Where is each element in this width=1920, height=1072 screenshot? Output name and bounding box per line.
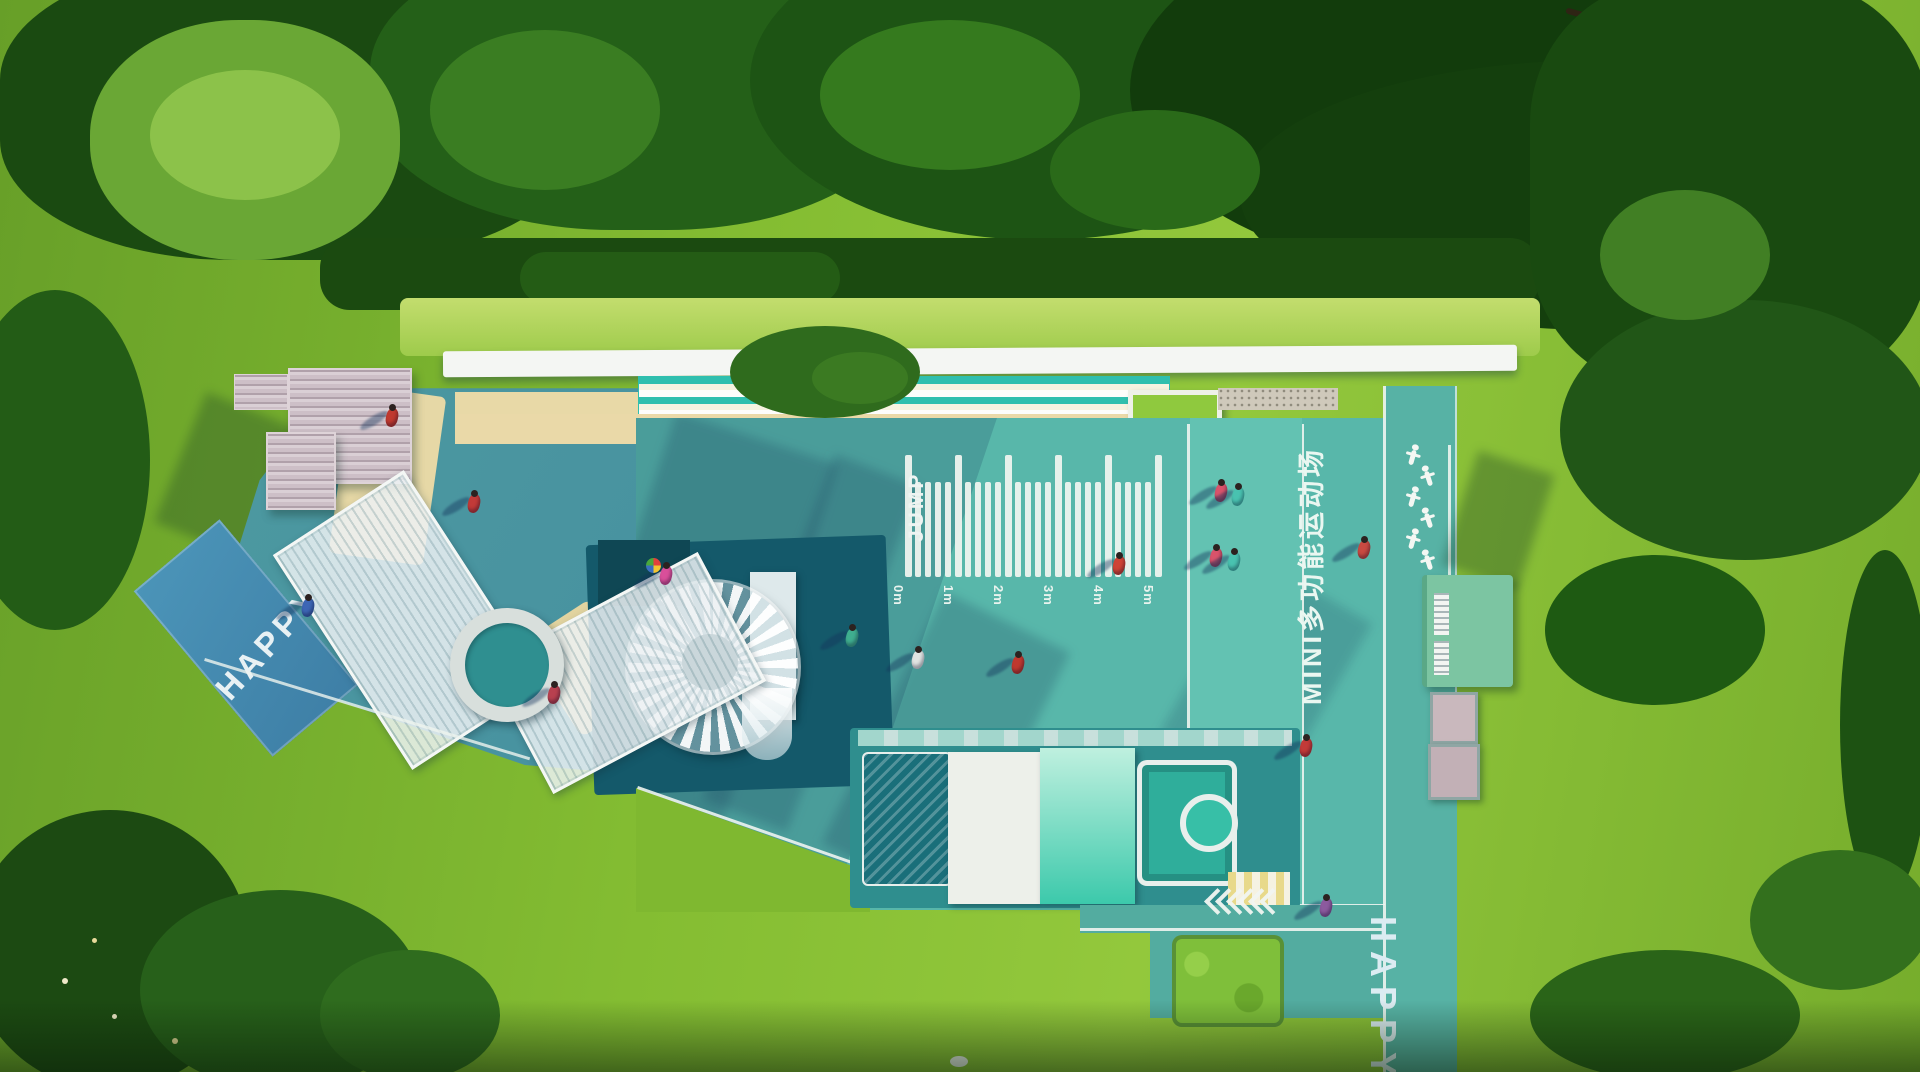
exercise-figure-icon [1424,513,1433,529]
chevron-row [1208,888,1298,922]
overhanging-leaves [812,352,908,404]
ruler-unit-label: 1m [941,585,956,606]
exercise-figure-icon [1424,471,1433,487]
tree-canopy-highlight [820,20,1080,170]
hedge-row-highlight [520,252,840,304]
climbing-ring [450,608,564,722]
kiosk-sign-panel [1434,641,1449,675]
exercise-figure-icon [1424,555,1433,571]
train-zone [850,728,1300,908]
kiosk-booth [1428,744,1480,800]
bush-cluster [1545,555,1765,705]
ruler-minor-tick [1065,482,1071,577]
pergola-roof [443,345,1517,378]
bush-cluster [1840,550,1920,900]
ruler-minor-tick [975,482,981,577]
train-track-stripes [858,730,1292,746]
ruler-minor-tick [995,482,1001,577]
ruler-minor-tick [935,482,941,577]
ruler-minor-tick [1045,482,1051,577]
jump-ruler: 0m1m2m3m4m5m [905,455,1175,620]
ruler-major-tick [1155,455,1162,577]
ruler-minor-tick [965,482,971,577]
ruler-minor-tick [985,482,991,577]
train-platform-slats [862,752,952,886]
court-name-text: MINI多功能运动场 [1290,446,1329,705]
ruler-minor-tick [1135,482,1141,577]
bottom-shadow-vignette [0,1000,1920,1072]
kiosk-sign-panel [1434,593,1449,635]
light-tree-highlight [150,70,340,200]
ruler-minor-tick [1145,482,1151,577]
flower-dot [92,938,97,943]
ruler-unit-label: 5m [1141,585,1156,606]
kiosk-building [1422,575,1513,687]
exercise-figure-icon [1408,534,1417,550]
tree-canopy [1560,300,1920,560]
ruler-major-tick [1055,455,1062,577]
ruler-major-tick [1105,455,1112,577]
ruler-unit-label: 0m [891,585,906,606]
ruler-minor-tick [1025,482,1031,577]
ruler-unit-label: 4m [1091,585,1106,606]
aerial-playground-scene: HAPPY 0m1m2m3m4m5m JUMP MINI多功能运动场 [0,0,1920,1072]
exercise-figure-icon [1408,450,1417,466]
exercise-figure-icon [1408,492,1417,508]
jump-text: JUMP [905,472,929,542]
ruler-major-tick [955,455,962,577]
ruler-minor-tick [1075,482,1081,577]
bush-cluster [1750,850,1920,990]
tree-canopy-highlight [430,30,660,190]
ruler-minor-tick [1095,482,1101,577]
fitness-shadow [1441,451,1554,590]
tree-canopy-highlight [1050,110,1260,230]
train-canopy-white [948,752,1040,904]
train-canopy-mint [1040,748,1135,904]
ruler-minor-tick [1085,482,1091,577]
ruler-minor-tick [1035,482,1041,577]
tree-canopy-highlight [1600,190,1770,320]
ruler-minor-tick [1115,482,1121,577]
wood-deck-small [234,374,288,410]
gravel-path [1218,388,1338,410]
ruler-unit-label: 3m [1041,585,1056,606]
wood-deck [266,432,336,510]
kiosk-booth [1430,692,1478,744]
ruler-major-tick [1005,455,1012,577]
ruler-unit-label: 2m [991,585,1006,606]
fitness-figures [1406,450,1456,590]
slide-exit-tube [742,688,792,760]
path-edge-line [1080,928,1388,931]
tree-canopy [0,290,150,630]
ruler-minor-tick [1125,482,1131,577]
flower-dot [62,978,68,984]
train-engine-boiler [1180,794,1238,852]
ruler-minor-tick [1015,482,1021,577]
ruler-minor-tick [945,482,951,577]
